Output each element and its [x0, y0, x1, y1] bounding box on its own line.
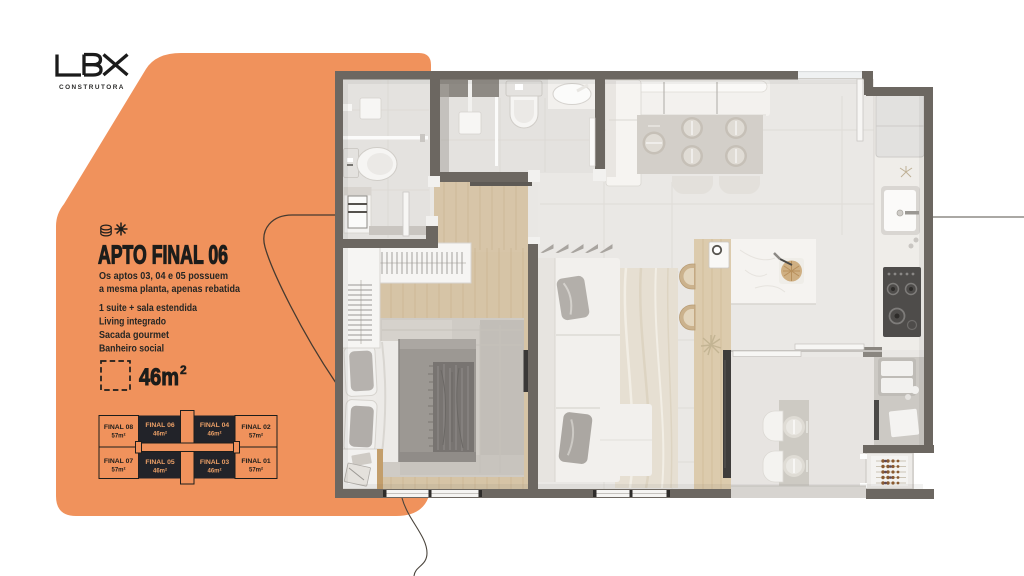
- svg-text:57m²: 57m²: [111, 467, 125, 474]
- svg-text:Banheiro social: Banheiro social: [99, 344, 164, 355]
- svg-text:CONSTRUTORA: CONSTRUTORA: [59, 84, 125, 91]
- svg-text:2: 2: [180, 363, 187, 377]
- svg-text:APTO FINAL 06: APTO FINAL 06: [98, 240, 228, 270]
- svg-text:FINAL 05: FINAL 05: [145, 459, 175, 466]
- svg-text:FINAL 03: FINAL 03: [200, 459, 230, 466]
- svg-text:FINAL 02: FINAL 02: [241, 424, 271, 431]
- svg-text:FINAL 04: FINAL 04: [200, 422, 230, 429]
- svg-text:FINAL 08: FINAL 08: [104, 424, 134, 431]
- svg-text:Os aptos 03, 04 e 05 possuem: Os aptos 03, 04 e 05 possuem: [99, 271, 228, 282]
- svg-text:46m²: 46m²: [207, 468, 221, 475]
- svg-text:FINAL 07: FINAL 07: [104, 458, 134, 465]
- svg-text:57m²: 57m²: [249, 433, 263, 440]
- svg-text:FINAL 06: FINAL 06: [145, 422, 175, 429]
- svg-text:Living integrado: Living integrado: [99, 317, 166, 328]
- svg-text:FINAL 01: FINAL 01: [241, 458, 271, 465]
- svg-text:Sacada gourmet: Sacada gourmet: [99, 330, 170, 341]
- svg-text:a mesma planta, apenas rebatid: a mesma planta, apenas rebatida: [99, 284, 240, 295]
- svg-text:46m²: 46m²: [207, 431, 221, 438]
- svg-text:46m²: 46m²: [153, 468, 167, 475]
- svg-text:46m: 46m: [139, 364, 179, 391]
- svg-text:57m²: 57m²: [111, 433, 125, 440]
- svg-text:57m²: 57m²: [249, 467, 263, 474]
- svg-text:1 suite + sala estendida: 1 suite + sala estendida: [99, 303, 197, 314]
- svg-text:46m²: 46m²: [153, 431, 167, 438]
